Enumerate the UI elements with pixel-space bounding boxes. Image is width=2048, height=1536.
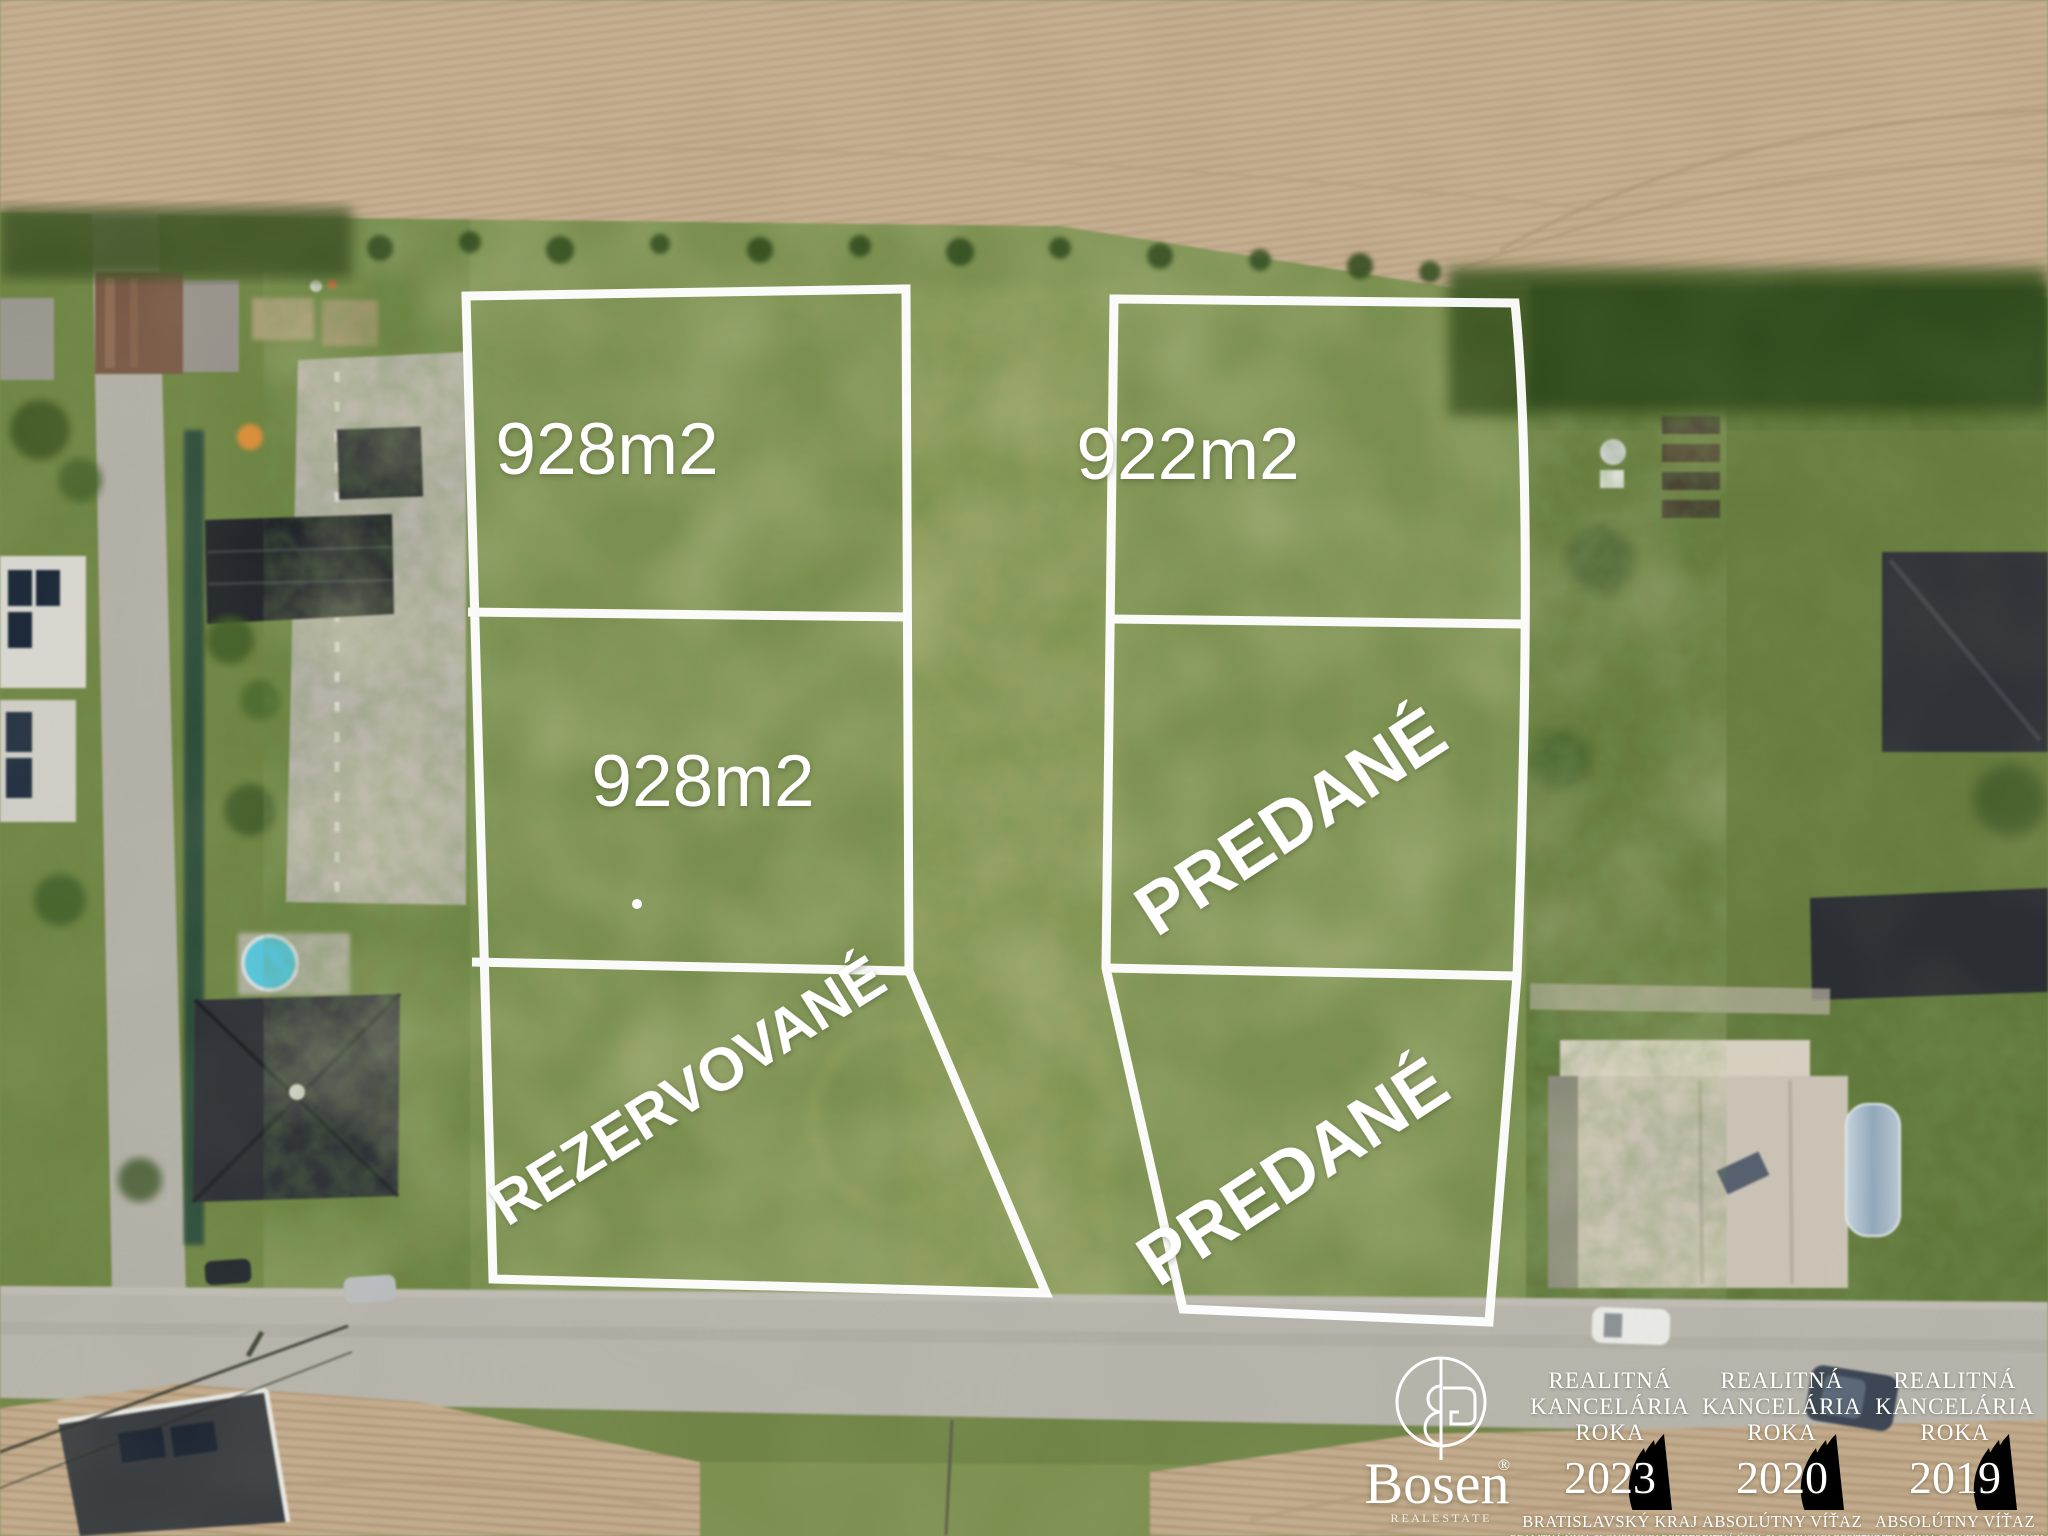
plot-divider-right-2	[1106, 968, 1517, 976]
award-subtitle: BRATISLAVSKÝ KRAJ	[1510, 1512, 1710, 1531]
aerial-photo-stage: 928m2 928m2 922m2 REZERVOVANÉ PREDANÉ PR…	[0, 0, 2048, 1536]
award-title-line: KANCELÁRIA	[1682, 1394, 1882, 1420]
plot-label-top-left: 928m2	[495, 409, 718, 490]
award-badge-2020: REALITNÁ KANCELÁRIA ROKA 2020 ABSOLÚTNY …	[1682, 1352, 1882, 1536]
plot-label-bottom-right: PREDANÉ	[1124, 1043, 1463, 1302]
plot-overlay: 928m2 928m2 922m2 REZERVOVANÉ PREDANÉ PR…	[0, 0, 2048, 1536]
plot-divider-left-1	[468, 612, 907, 617]
award-subtitle: ABSOLÚTNY VÍŤAZ	[1682, 1512, 1882, 1531]
award-badge-2019: REALITNÁ KANCELÁRIA ROKA 2019 ABSOLÚTNY …	[1855, 1352, 2048, 1536]
bosen-wordmark: Bosen	[1365, 1451, 1510, 1516]
award-title-line: REALITNÁ	[1855, 1352, 2048, 1394]
award-title-line: REALITNÁ	[1510, 1352, 1710, 1394]
award-title-line: ROKA	[1510, 1420, 1710, 1446]
award-title-line: ROKA	[1855, 1420, 2048, 1446]
award-year: 2020	[1682, 1454, 1882, 1502]
plot-label-dot	[632, 899, 642, 909]
award-title-line: REALITNÁ	[1682, 1352, 1882, 1394]
bosen-monogram-icon	[1397, 1357, 1485, 1460]
award-title-line: KANCELÁRIA	[1855, 1394, 2048, 1420]
bosen-registered-mark: ®	[1498, 1457, 1510, 1474]
plot-label-middle-right: PREDANÉ	[1122, 693, 1461, 952]
award-year: 2023	[1510, 1454, 1710, 1502]
award-subtitle: ABSOLÚTNY VÍŤAZ	[1855, 1512, 2048, 1531]
award-title-line: KANCELÁRIA	[1510, 1394, 1710, 1420]
plot-divider-right-1	[1111, 619, 1526, 624]
bosen-logo: Bosen ® R E A L E S T A T E	[1365, 1357, 1511, 1525]
plot-label-middle-left: 928m2	[591, 741, 814, 822]
plot-label-top-right: 922m2	[1076, 414, 1299, 495]
award-year: 2019	[1855, 1454, 2048, 1502]
plot-label-bottom-left: REZERVOVANÉ	[479, 943, 897, 1239]
award-badge-2023: REALITNÁ KANCELÁRIA ROKA 2023 BRATISLAVS…	[1510, 1352, 1710, 1536]
bosen-tagline: R E A L E S T A T E	[1390, 1511, 1489, 1525]
award-title-line: ROKA	[1682, 1420, 1882, 1446]
